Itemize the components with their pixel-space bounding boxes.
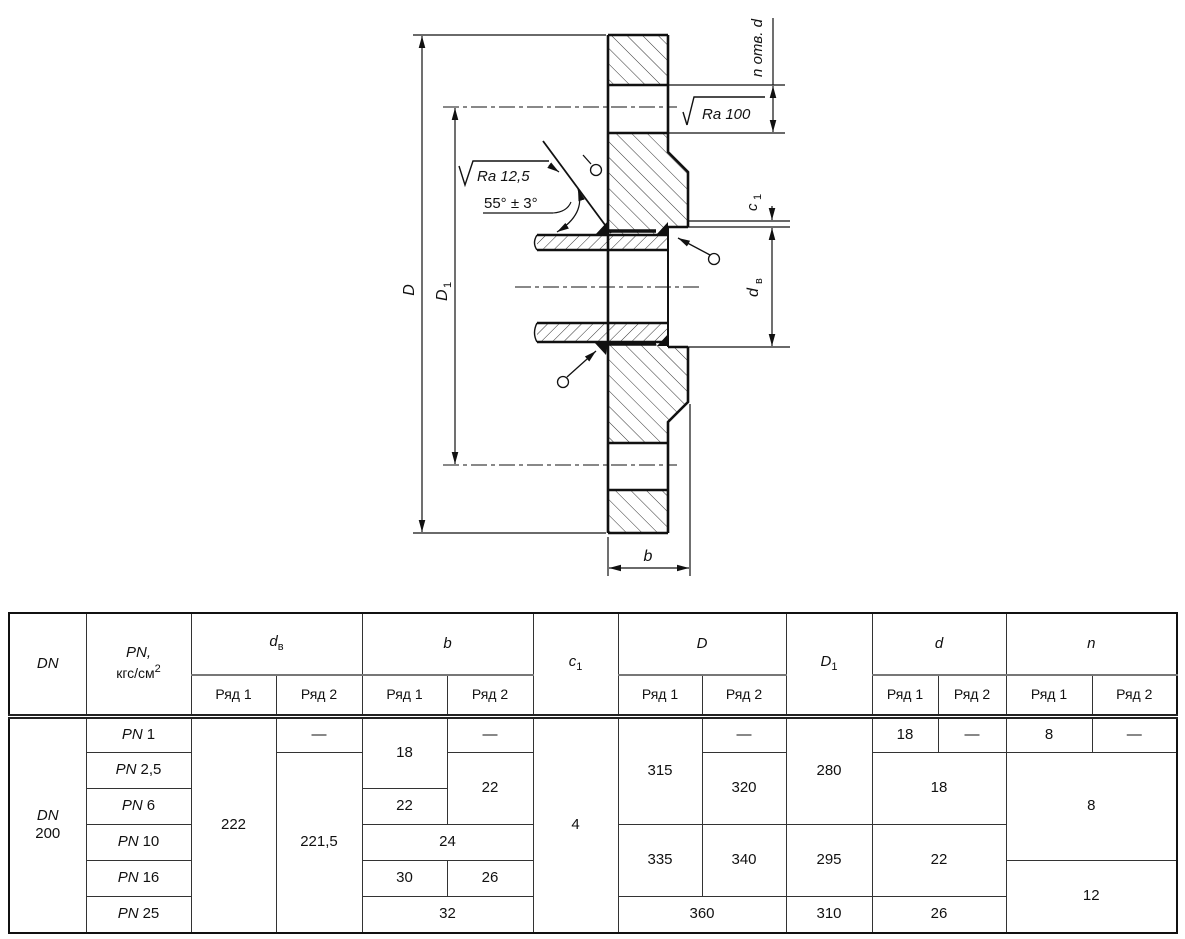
cell-b-row1-22: 22 bbox=[362, 789, 447, 825]
label-holes-count: n отв. d bbox=[749, 18, 766, 77]
header-dv-label: d bbox=[269, 633, 277, 650]
header-b-row1: Ряд 1 bbox=[362, 675, 447, 717]
cell-d-26: 26 bbox=[872, 897, 1006, 933]
cell-d-row1-18: 18 bbox=[872, 717, 938, 753]
cell-n-8: 8 bbox=[1006, 753, 1177, 861]
cell-b-32: 32 bbox=[362, 897, 533, 933]
header-d: d bbox=[872, 613, 1006, 675]
header-dn-label: DN bbox=[37, 655, 59, 672]
dimension-lines bbox=[413, 18, 790, 576]
cell-pn-2: PN2,5 bbox=[86, 753, 191, 789]
header-b: b bbox=[362, 613, 533, 675]
cell-pn-16: PN16 bbox=[86, 861, 191, 897]
label-roughness-bevel: Ra 12,5 bbox=[477, 168, 530, 185]
header-D-row2: Ряд 2 bbox=[702, 675, 786, 717]
header-d-row2: Ряд 2 bbox=[938, 675, 1006, 717]
header-c1-sub: 1 bbox=[576, 661, 582, 673]
flange-section-drawing: D D 1 n отв. d Ra 100 Ra 12,5 55° ± 3° c… bbox=[0, 0, 1185, 600]
cell-D-row2-320: 320 bbox=[702, 753, 786, 825]
header-d-row1: Ряд 1 bbox=[872, 675, 938, 717]
header-dv: dв bbox=[191, 613, 362, 675]
header-dv-row1: Ряд 1 bbox=[191, 675, 276, 717]
label-roughness-face: Ra 100 bbox=[702, 106, 751, 123]
cell-D1-310: 310 bbox=[786, 897, 872, 933]
header-D1-label: D bbox=[821, 653, 832, 670]
cell-D1-295: 295 bbox=[786, 825, 872, 897]
cell-b-24: 24 bbox=[362, 825, 533, 861]
header-b-row2: Ряд 2 bbox=[447, 675, 533, 717]
cell-D-row1-335: 335 bbox=[618, 825, 702, 897]
header-group-row: DN PN,кгс/см2 dв b c1 D D1 d n bbox=[9, 613, 1177, 675]
flange-outline bbox=[608, 35, 688, 533]
label-thickness: b bbox=[644, 548, 653, 565]
label-face-step-sub: 1 bbox=[752, 194, 764, 200]
cell-pn-1: PN1 bbox=[86, 717, 191, 753]
header-d-label: d bbox=[935, 635, 943, 652]
cell-n-row1-8: 8 bbox=[1006, 717, 1092, 753]
header-D-label: D bbox=[697, 635, 708, 652]
cell-dv-row2-dash: — bbox=[276, 717, 362, 753]
cell-n-12: 12 bbox=[1006, 861, 1177, 933]
cell-d-22: 22 bbox=[872, 825, 1006, 897]
cell-n-row2-dash: — bbox=[1092, 717, 1177, 753]
cell-dv-221-5: 221,5 bbox=[276, 753, 362, 933]
header-pn-unit: кгс/см bbox=[116, 665, 154, 681]
cell-b-row2-22: 22 bbox=[447, 753, 533, 825]
cell-b-row2-26: 26 bbox=[447, 861, 533, 897]
flange-dimensions-table: DN PN,кгс/см2 dв b c1 D D1 d n Ряд 1 Ряд… bbox=[8, 612, 1178, 934]
header-pn-sup: 2 bbox=[155, 663, 161, 675]
header-n-label: n bbox=[1087, 635, 1095, 652]
section-hatching bbox=[537, 35, 688, 533]
label-bore-diameter-sub: в bbox=[753, 278, 765, 284]
cell-D-row2-dash: — bbox=[702, 717, 786, 753]
label-bolt-circle-sub: 1 bbox=[442, 282, 454, 288]
cell-b-row2-dash: — bbox=[447, 717, 533, 753]
header-n-row2: Ряд 2 bbox=[1092, 675, 1177, 717]
header-c1: c1 bbox=[533, 613, 618, 717]
header-D1-sub: 1 bbox=[831, 661, 837, 673]
cell-b-row1-30: 30 bbox=[362, 861, 447, 897]
header-n-row1: Ряд 1 bbox=[1006, 675, 1092, 717]
cell-D-row2-340: 340 bbox=[702, 825, 786, 897]
label-outer-diameter: D bbox=[401, 284, 418, 296]
cell-pn-6: PN6 bbox=[86, 789, 191, 825]
label-face-step: c bbox=[744, 203, 761, 211]
cell-D-row1-315: 315 bbox=[618, 717, 702, 825]
cell-c1: 4 bbox=[533, 717, 618, 933]
header-D1: D1 bbox=[786, 613, 872, 717]
header-D: D bbox=[618, 613, 786, 675]
cell-D1-280: 280 bbox=[786, 717, 872, 825]
dn-value: 200 bbox=[35, 825, 60, 842]
header-D-row1: Ряд 1 bbox=[618, 675, 702, 717]
cell-dv-row1: 222 bbox=[191, 717, 276, 933]
dn-prefix: DN bbox=[37, 807, 59, 824]
cell-D-360: 360 bbox=[618, 897, 786, 933]
cell-b-row1-18: 18 bbox=[362, 717, 447, 789]
header-dv-row2: Ряд 2 bbox=[276, 675, 362, 717]
header-dn: DN bbox=[9, 613, 86, 717]
cell-pn-25: PN25 bbox=[86, 897, 191, 933]
cell-dn: DN200 bbox=[9, 717, 86, 933]
header-b-label: b bbox=[443, 635, 451, 652]
header-pn: PN,кгс/см2 bbox=[86, 613, 191, 717]
label-bevel-angle: 55° ± 3° bbox=[484, 195, 538, 212]
cell-d-row2-dash: — bbox=[938, 717, 1006, 753]
label-bolt-circle: D bbox=[434, 289, 451, 301]
header-n: n bbox=[1006, 613, 1177, 675]
label-bore-diameter: d bbox=[745, 287, 762, 297]
header-pn-label: PN, bbox=[126, 644, 151, 661]
row-pn1: DN200 PN1 222 — 18 — 4 315 — 280 18 — 8 … bbox=[9, 717, 1177, 753]
drawing-labels: D D 1 n отв. d Ra 100 Ra 12,5 55° ± 3° c… bbox=[401, 18, 766, 565]
cell-pn-10: PN10 bbox=[86, 825, 191, 861]
cell-d-18: 18 bbox=[872, 753, 1006, 825]
header-dv-sub: в bbox=[278, 641, 284, 653]
